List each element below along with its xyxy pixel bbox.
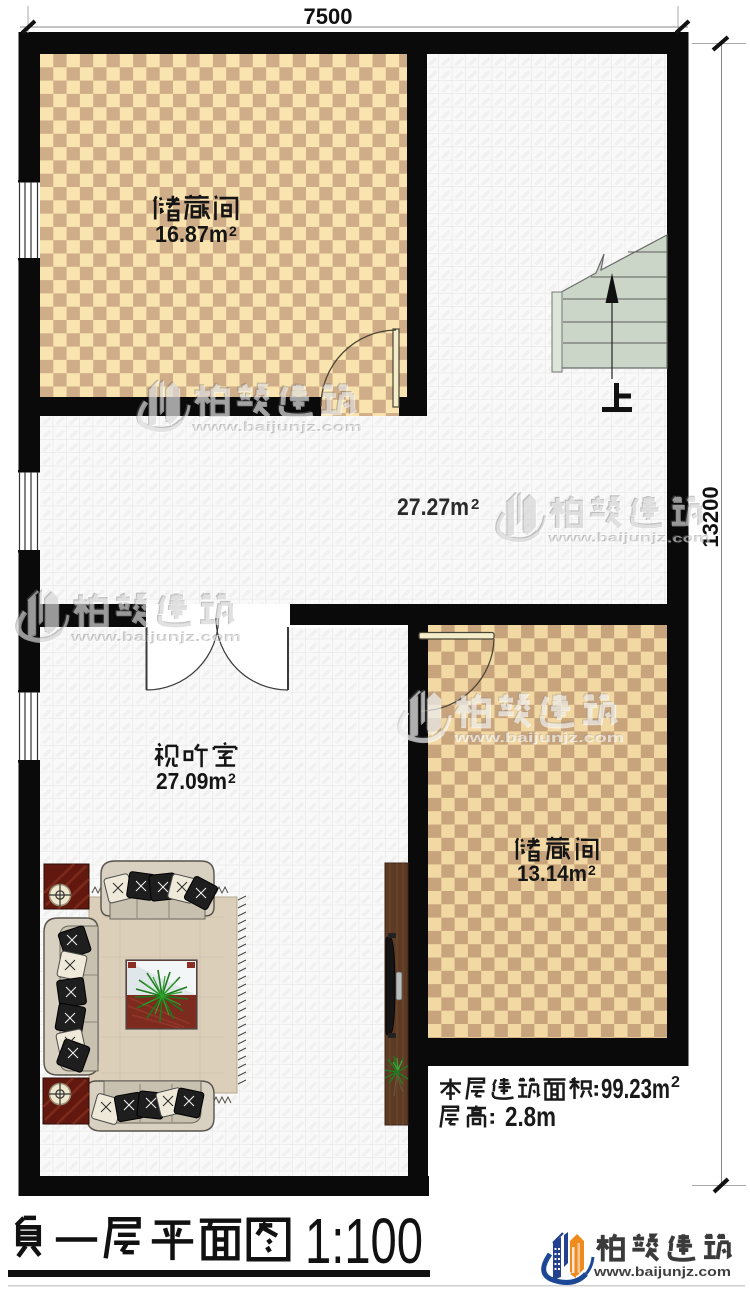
svg-text:2: 2 [471, 496, 479, 513]
svg-text:13.14m: 13.14m [517, 861, 587, 886]
svg-text:1:100: 1:100 [305, 1205, 423, 1277]
svg-text:www.baijunjz.com: www.baijunjz.com [593, 1264, 731, 1279]
svg-text:99.23m: 99.23m [601, 1073, 670, 1104]
svg-text:2: 2 [588, 862, 596, 878]
svg-text:2: 2 [229, 223, 237, 239]
svg-text:2: 2 [671, 1074, 680, 1091]
svg-text:27.27m: 27.27m [397, 494, 469, 521]
svg-text:27.09m: 27.09m [156, 768, 227, 794]
svg-text:2.8m: 2.8m [505, 1101, 556, 1132]
svg-text:16.87m: 16.87m [155, 221, 228, 247]
svg-text:2: 2 [228, 770, 236, 786]
svg-text:7500: 7500 [304, 4, 353, 29]
